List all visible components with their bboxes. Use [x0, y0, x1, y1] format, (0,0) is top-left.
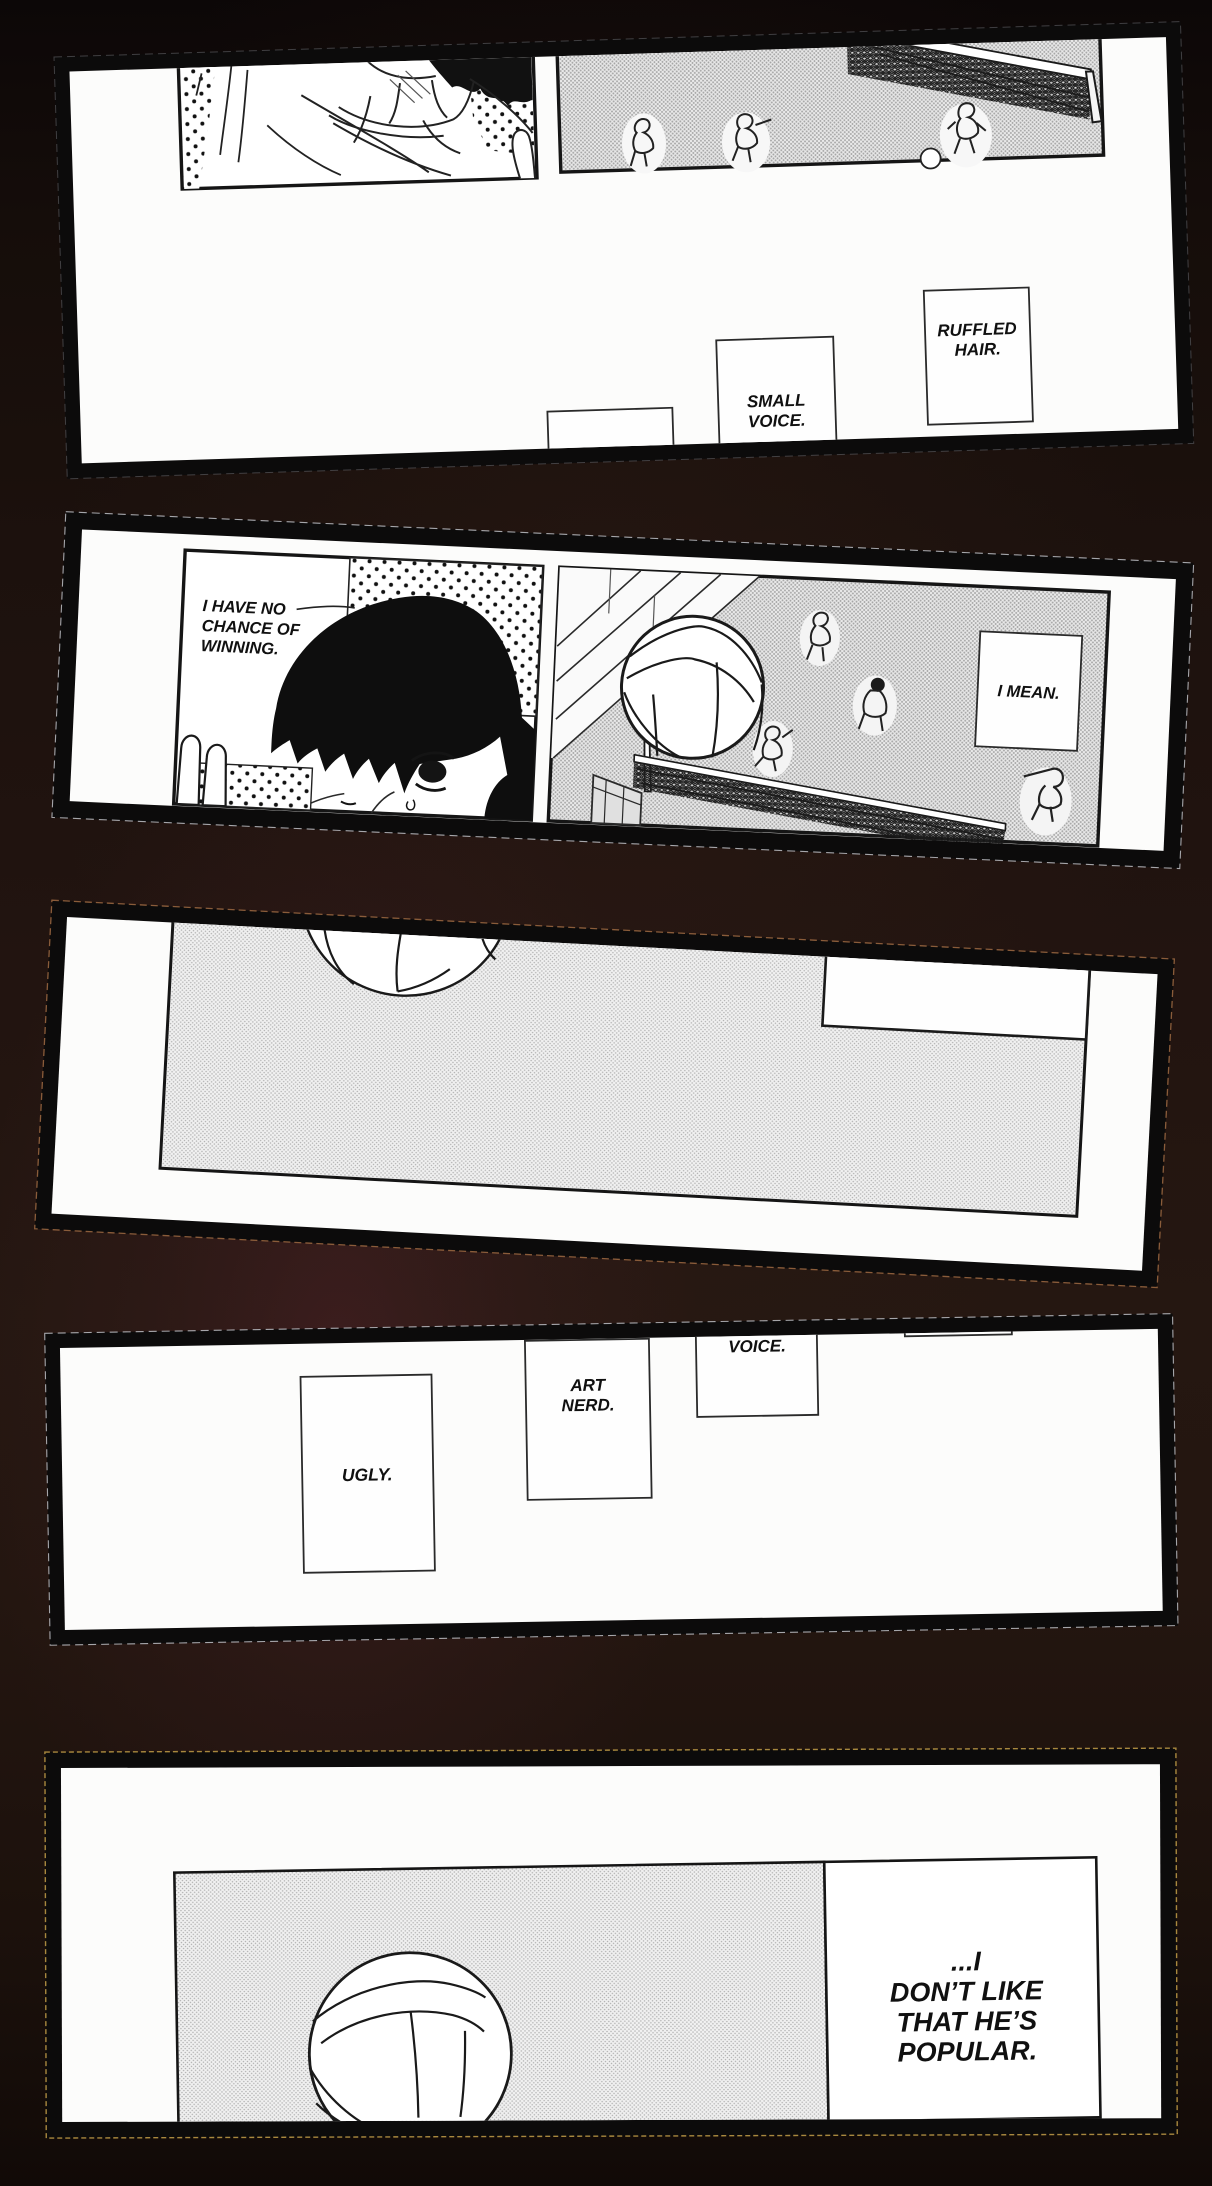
svg-text:...I: ...I: [951, 1946, 982, 1977]
svg-text:UGLY.: UGLY.: [342, 1464, 393, 1485]
svg-text:VOICE.: VOICE.: [748, 411, 806, 432]
svg-text:I MEAN.: I MEAN.: [997, 682, 1060, 703]
svg-text:ART: ART: [569, 1376, 607, 1396]
svg-text:DON’T LIKE: DON’T LIKE: [890, 1975, 1044, 2008]
svg-text:THAT HE’S: THAT HE’S: [896, 2005, 1037, 2037]
svg-text:VOICE.: VOICE.: [728, 1336, 786, 1356]
svg-text:HAIR.: HAIR.: [954, 339, 1001, 359]
svg-text:SMALL: SMALL: [747, 391, 806, 412]
svg-text:RUFFLED: RUFFLED: [937, 319, 1017, 340]
svg-text:WINNING.: WINNING.: [200, 637, 279, 659]
svg-text:NERD.: NERD.: [561, 1395, 614, 1415]
svg-text:I HAVE NO: I HAVE NO: [202, 597, 286, 619]
svg-text:POPULAR.: POPULAR.: [897, 2035, 1037, 2067]
